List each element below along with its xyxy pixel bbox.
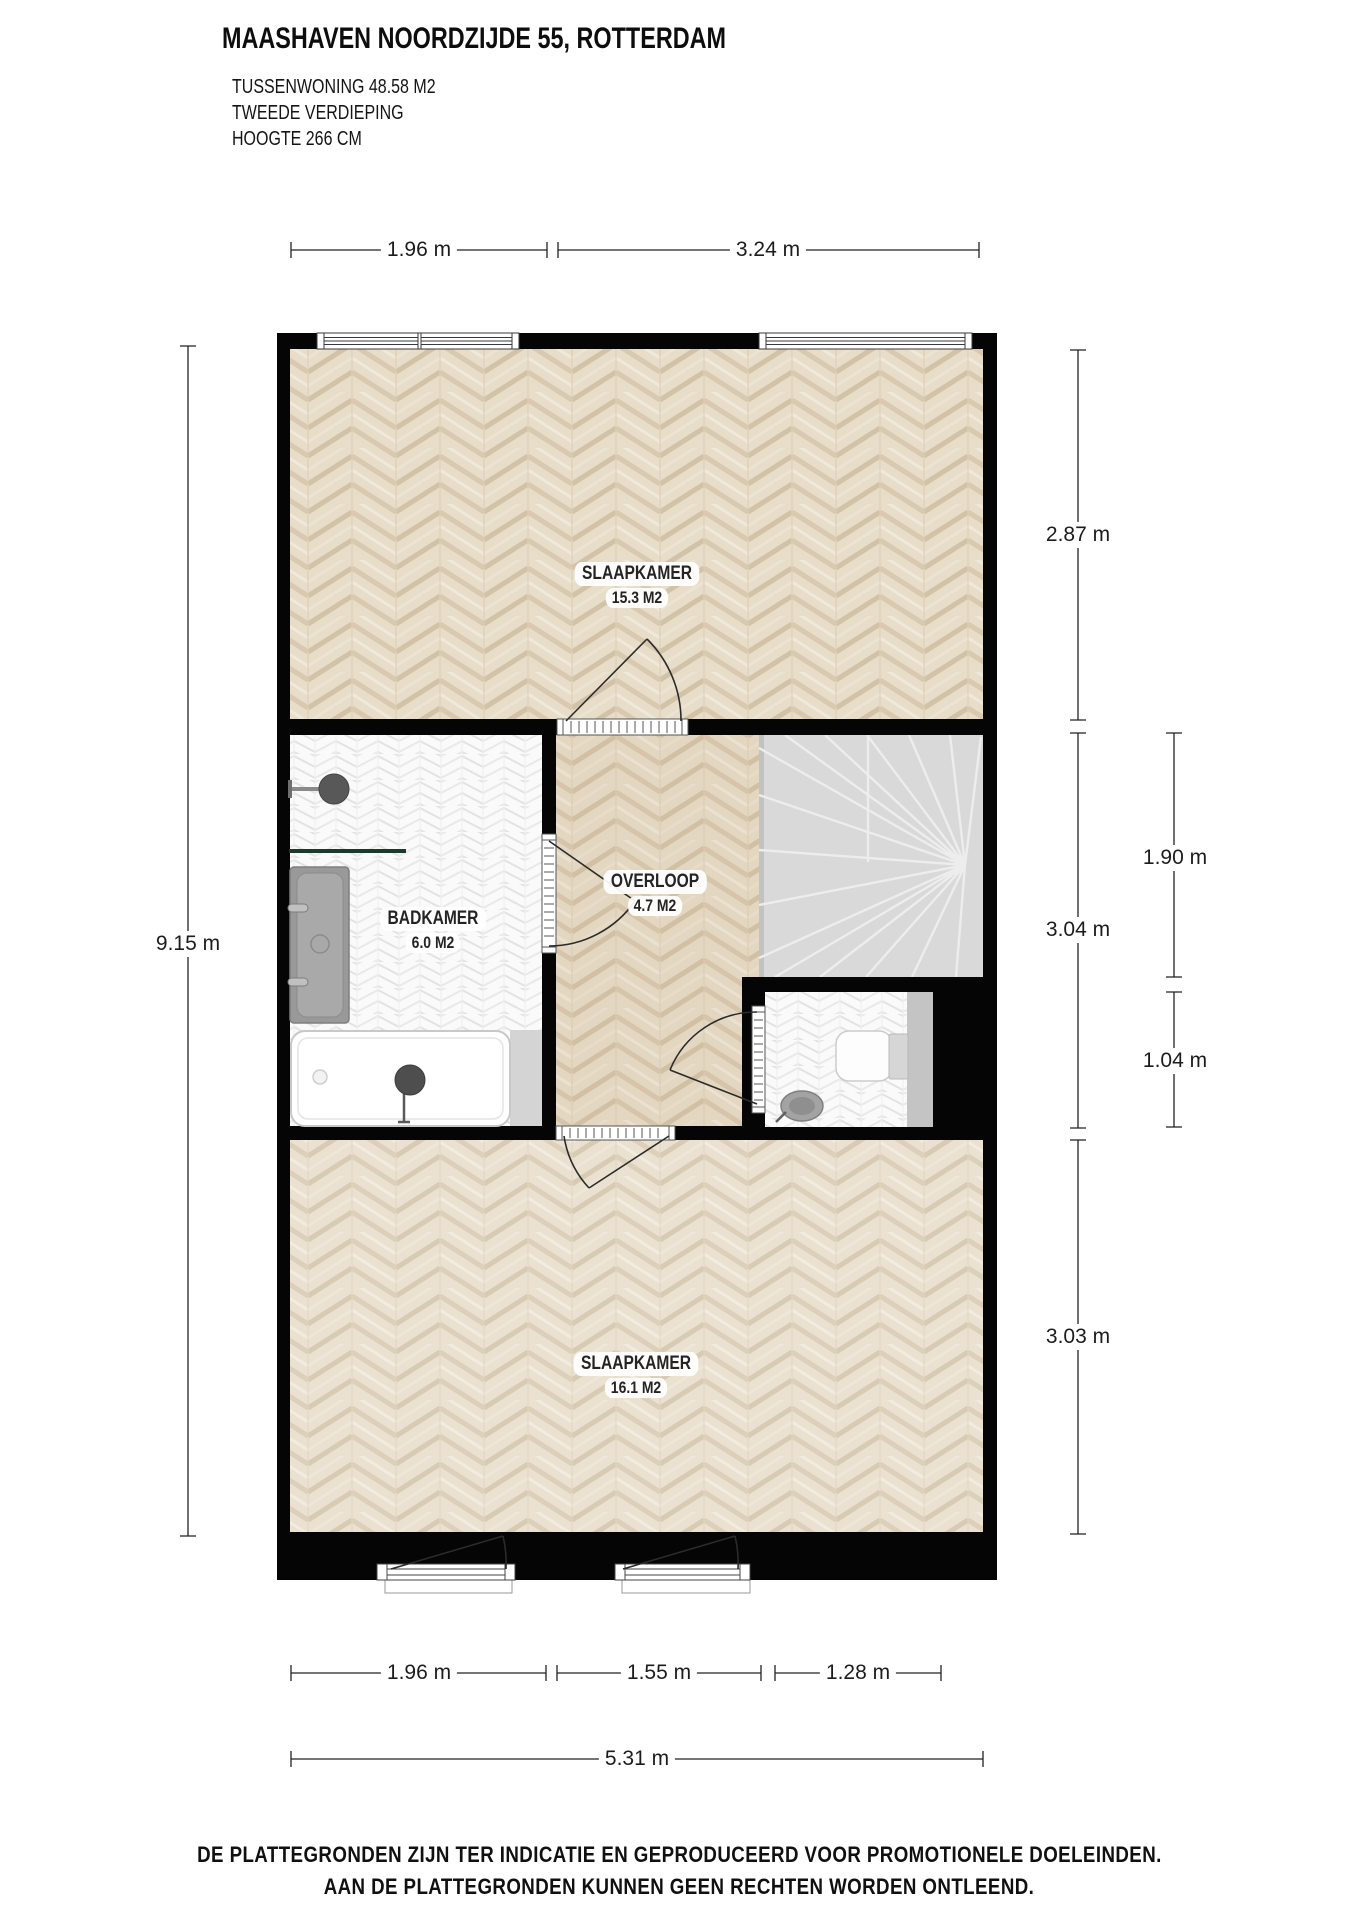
footer-text-2: AAN DE PLATTEGRONDEN KUNNEN GEEN RECHTEN… [324,1874,1035,1900]
toilet-room [765,992,933,1127]
footer-disclaimer-line2: AAN DE PLATTEGRONDEN KUNNEN GEEN RECHTEN… [0,1874,1358,1900]
dim-label-left-1: 9.15 m [150,931,226,957]
room-label-bathroom: BADKAMER 6.0 M2 [380,907,486,953]
room-label-bedroom1: SLAAPKAMER 15.3 M2 [575,562,700,608]
washbasin-bowl [789,1097,815,1115]
wall-left [277,333,290,1580]
subtitle-size: TUSSENWONING 48.58 M2 [232,74,741,100]
dim-label-right-5: 1.04 m [1137,1048,1213,1074]
room-area: 6.0 M2 [406,933,460,953]
faucet-bottom [288,978,308,986]
tub-drain [313,1070,327,1084]
tub-ledge [510,1030,542,1126]
subtitle-height: HOOGTE 266 CM [232,126,741,152]
threshold-toilet [752,1006,765,1113]
floorplan-drawing [0,0,1358,1920]
room-name: SLAAPKAMER [575,562,700,586]
footer-disclaimer-line1: DE PLATTEGRONDEN ZIJN TER INDICATIE EN G… [0,1842,1358,1868]
subtitle-floor: TWEEDE VERDIEPING [232,100,741,126]
room-area: 15.3 M2 [606,588,668,608]
dim-label-right-2: 3.04 m [1040,917,1116,943]
threshold-bedroom2 [556,1126,675,1140]
dim-label-top-2: 3.24 m [730,237,806,263]
room-name: BADKAMER [380,907,486,931]
window-2 [421,333,512,349]
page-title: MAASHAVEN NOORDZIJDE 55, ROTTERDAM [222,22,726,56]
dim-label-bottom-4: 5.31 m [599,1746,675,1772]
room-name: OVERLOOP [603,870,706,894]
threshold-bathroom [542,834,556,953]
threshold-bedroom1 [557,719,688,735]
dim-label-right-3: 3.03 m [1040,1324,1116,1350]
stairs [759,735,983,977]
vanity-basin [297,873,343,1017]
wall-right [983,333,997,1580]
door1-sill [385,1580,512,1593]
dim-label-right-1: 2.87 m [1040,522,1116,548]
dim-label-bottom-1: 1.96 m [381,1660,457,1686]
footer-text-1: DE PLATTEGRONDEN ZIJN TER INDICATIE EN G… [197,1842,1162,1868]
header-block: MAASHAVEN NOORDZIJDE 55, ROTTERDAM TUSSE… [222,22,868,152]
dim-label-bottom-2: 1.55 m [621,1660,697,1686]
bedroom2-tint [290,1140,983,1532]
floorplan-page: MAASHAVEN NOORDZIJDE 55, ROTTERDAM TUSSE… [0,0,1358,1920]
overloop-tint [556,735,761,1126]
toilet-ledge [907,992,933,1127]
toilet-icon [836,1031,892,1081]
window-1 [324,333,418,349]
tub-shower-head-icon [395,1065,425,1095]
shower-head-icon [319,774,349,804]
room-area: 16.1 M2 [605,1378,667,1398]
room-label-bedroom2: SLAAPKAMER 16.1 M2 [574,1352,699,1398]
door2-leaf [615,1564,750,1580]
room-label-overloop: OVERLOOP 4.7 M2 [603,870,706,916]
dim-label-right-4: 1.90 m [1137,845,1213,871]
shower-mount [288,780,292,798]
faucet-top [288,904,308,912]
dim-label-top-1: 1.96 m [381,237,457,263]
bedroom1-floor [290,349,983,719]
room-name: SLAAPKAMER [574,1352,699,1376]
door2-sill [622,1580,750,1593]
window-3 [766,333,965,349]
dim-label-bottom-3: 1.28 m [820,1660,896,1686]
toilet-cistern [889,1034,908,1079]
room-area: 4.7 M2 [628,896,682,916]
shelf-icon [289,849,406,853]
